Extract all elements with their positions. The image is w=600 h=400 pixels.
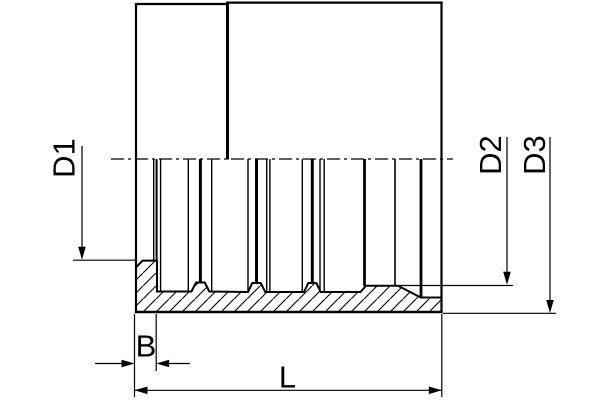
d2-arrowhead [503, 272, 511, 285]
b-arrowhead-right [156, 360, 169, 368]
b-label: B [136, 329, 157, 364]
l-arrowhead-right [429, 387, 442, 395]
dimension-l: L [135, 314, 442, 397]
dimension-d2: D2 [399, 135, 513, 285]
ferrule-section-drawing: D1 D2 D3 B L [0, 0, 600, 400]
dimension-d1: D1 [47, 138, 136, 260]
d1-arrowhead [78, 247, 86, 260]
d3-arrowhead [546, 300, 554, 313]
serration-lines [154, 159, 421, 298]
d2-label: D2 [473, 135, 508, 175]
drawing-canvas: D1 D2 D3 B L [0, 0, 600, 400]
l-arrowhead-left [135, 387, 148, 395]
b-arrowhead-left [122, 360, 135, 368]
d1-label: D1 [47, 138, 82, 178]
ferrule-outline [135, 2, 443, 314]
d3-label: D3 [517, 135, 552, 175]
dimension-b: B [95, 314, 190, 397]
l-label: L [279, 360, 296, 395]
